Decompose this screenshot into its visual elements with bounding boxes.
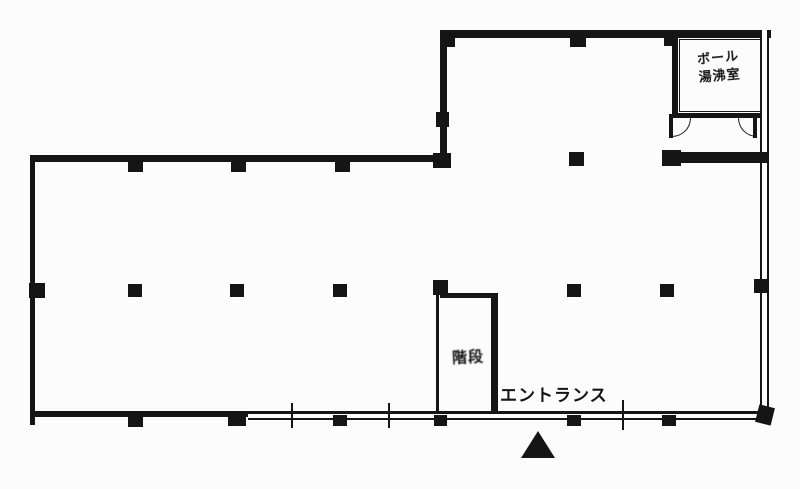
column [570, 34, 586, 47]
floor-plan: ボール 湯沸室 階段 エントランス [0, 0, 800, 489]
column [29, 283, 45, 298]
stairs-label: 階段 [451, 345, 484, 368]
column [754, 279, 769, 293]
column [231, 161, 246, 172]
door-swing-arc-right [738, 118, 757, 137]
window-band-right [760, 30, 769, 421]
column [662, 150, 681, 166]
wall-stair-right [491, 293, 498, 411]
window-band-bottom [248, 411, 765, 420]
column [434, 415, 447, 426]
column [333, 284, 347, 297]
column [230, 284, 244, 297]
wall-stair-top [440, 293, 498, 298]
column [433, 153, 451, 168]
wall-stair-left [436, 295, 439, 411]
column [128, 417, 143, 427]
column [335, 161, 350, 172]
column [567, 284, 581, 297]
column [128, 161, 143, 172]
column [664, 31, 678, 46]
entrance-label: エントランス [500, 381, 608, 406]
window-mullion-tick [291, 403, 293, 428]
column [436, 112, 449, 127]
door-swing-arc-left [672, 118, 691, 137]
corner-junction-mark [755, 404, 775, 425]
column [660, 284, 674, 297]
wall-upper-left [440, 33, 447, 160]
window-mullion-tick [388, 403, 390, 428]
column [441, 33, 455, 47]
wall-upper-top [440, 30, 771, 38]
column [333, 415, 347, 426]
column [128, 284, 142, 297]
column [567, 415, 581, 426]
window-mullion-tick [622, 400, 624, 430]
column [228, 413, 246, 426]
entrance-triangle-icon [521, 431, 555, 458]
utility-room-label: ボール 湯沸室 [685, 47, 754, 89]
column [569, 152, 584, 166]
column [662, 415, 676, 426]
column [433, 280, 448, 295]
